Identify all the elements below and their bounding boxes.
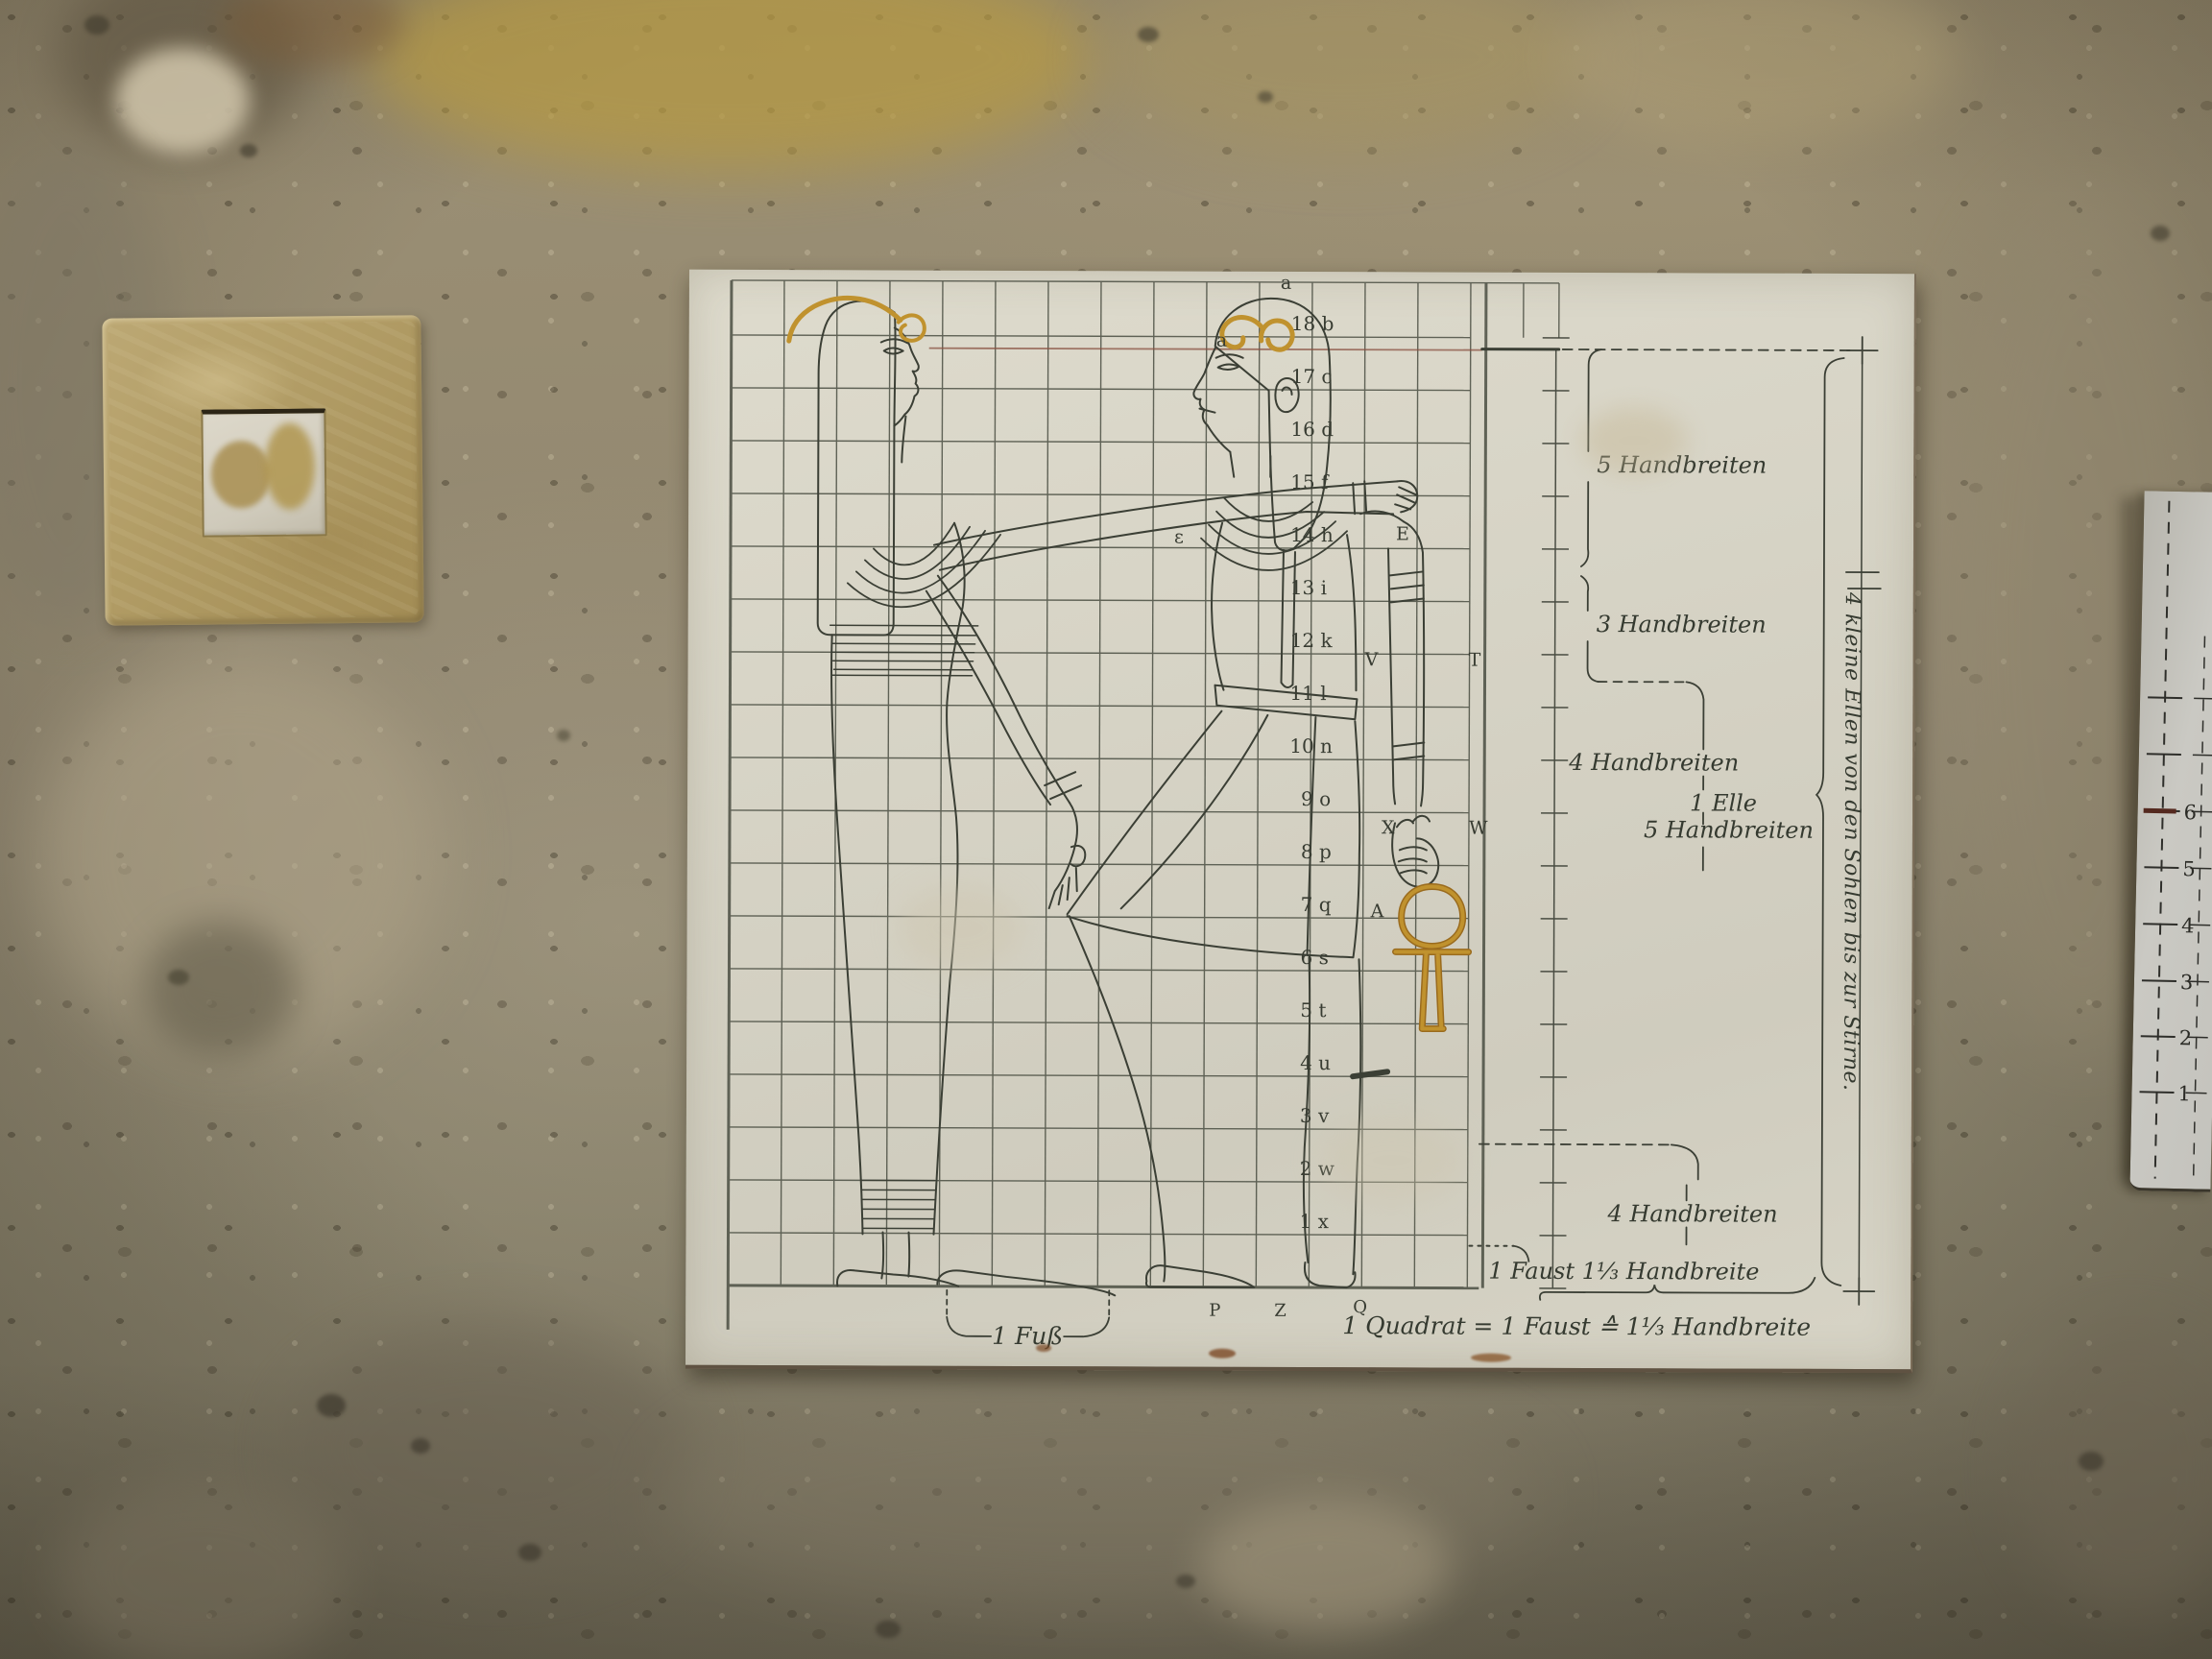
ruler-number: 1 (2177, 1082, 2191, 1105)
pharaoh-front-foot (1305, 1262, 1356, 1287)
ruler-tick (2143, 924, 2177, 925)
point-letter: Z (1274, 1301, 1286, 1321)
grid-vline (1361, 282, 1365, 1287)
measure-label: 3 Handbreiten (1597, 611, 1767, 638)
goddess-hand (1049, 803, 1086, 908)
ankh-icon (1395, 886, 1469, 1028)
pharaoh-hanging-arm (1387, 521, 1425, 805)
point-letter: T (1469, 650, 1481, 671)
scale-number: 11 l (1289, 682, 1326, 705)
pharaoh-eye (1216, 354, 1243, 370)
goddess-hand-on-shoulder (1395, 481, 1417, 512)
goddess-gold-coil-icon (899, 315, 925, 341)
grid-vline (728, 280, 732, 1330)
ruler-number: 6 (2183, 801, 2197, 824)
elle-ticks (1846, 572, 1881, 589)
scale-number: 10 n (1289, 734, 1333, 757)
pharaoh-face (1193, 349, 1231, 452)
ruler-tick (2140, 1092, 2175, 1093)
egyptian-proportion-canon-poster: 18 b17 c16 d15 f14 h13 i12 k11 l10 n9 o8… (685, 270, 1916, 1373)
goddess-neck (902, 417, 905, 463)
ruler-marks (2136, 500, 2212, 1179)
vertical-note: 4 kleine Ellen von den Sohlen bis zur St… (1839, 591, 1864, 1092)
point-letter: E (1396, 523, 1409, 544)
square-grid (728, 280, 1559, 1333)
ruler-number: 2 (2178, 1026, 2192, 1049)
grid-hline (728, 1286, 1479, 1288)
grid-right-edge (1482, 283, 1486, 1288)
red-guide-line (929, 349, 1482, 350)
scale-number: 16 d (1290, 418, 1334, 441)
fingertip-bold-dash (1353, 1071, 1387, 1076)
ruler-tick (2148, 697, 2182, 698)
formula-label: 1 Quadrat = 1 Faust ≙ 1⅓ Handbreite (1342, 1311, 1811, 1341)
scale-number: 2 w (1300, 1157, 1334, 1180)
ruler-canvas: 654321 (2129, 491, 2212, 1190)
goddess-back-foot (837, 1270, 958, 1286)
scale-number: 12 k (1290, 629, 1334, 652)
ankh-gold-fill (1395, 886, 1469, 1028)
point-letter: A (1370, 901, 1384, 922)
pharaoh-wig-queue (1281, 550, 1294, 687)
scale-number: 13 i (1290, 576, 1327, 599)
measure-label: 4 Handbreiten (1607, 1200, 1778, 1228)
pharaoh-belt (1214, 685, 1357, 720)
grid-vline (1256, 282, 1260, 1287)
scale-number: 14 h (1290, 523, 1334, 546)
measure-labels: 5 Handbreiten3 Handbreiten4 Handbreiten1… (1488, 451, 1815, 1286)
point-letter: P (1209, 1301, 1220, 1321)
grid-vline (1097, 281, 1101, 1286)
measure-label: 4 Handbreiten (1568, 749, 1739, 777)
point-letter: W (1469, 818, 1488, 839)
ruler-tick (2141, 1036, 2176, 1037)
measure-label: 1 Elle (1690, 789, 1757, 816)
point-letter: X (1382, 817, 1395, 838)
ruler-tick (2144, 867, 2178, 868)
paint-blot (264, 422, 315, 510)
point-letter: a (1216, 330, 1227, 351)
scale-number: 15 f (1290, 470, 1330, 493)
light-switch-rocker (201, 408, 326, 537)
grid-vline (1150, 281, 1154, 1286)
tick-column (1539, 338, 1569, 1288)
ruler-number: 3 (2180, 971, 2194, 994)
goddess-bracelet (1045, 772, 1081, 799)
grid-vline (1414, 282, 1418, 1287)
grid-top-line (732, 280, 1559, 283)
pharaoh-figure (1066, 298, 1440, 1287)
measure-label: 5 Handbreiten (1644, 816, 1814, 844)
cross-mark (1847, 337, 1878, 364)
photo-of-wall-with-proportion-diagram: 18 b17 c16 d15 f14 h13 i12 k11 l10 n9 o8… (0, 0, 2212, 1659)
cross-mark-bottom (1843, 1278, 1874, 1305)
goddess-hem-stripes (862, 1180, 935, 1228)
goddess-front-foot (937, 1270, 1115, 1295)
scale-number: 18 b (1291, 312, 1334, 335)
scale-number: 9 o (1301, 787, 1331, 810)
forehead-line-dashed (1563, 349, 1857, 350)
pharaoh-gold-uraeus-icon (1222, 317, 1292, 349)
scale-number: 4 u (1300, 1051, 1331, 1074)
point-letter: V (1364, 649, 1379, 670)
grid-vline (992, 281, 996, 1286)
dash-line-low (1479, 1144, 1671, 1145)
bracket-4-handbreiten-low (1671, 1144, 1697, 1244)
partial-ruler-panel: 654321 (2129, 491, 2212, 1192)
scale-number: 6 s (1300, 946, 1328, 969)
scale-number: 1 x (1300, 1210, 1330, 1233)
fuss-bracket-dashes (947, 1290, 1109, 1318)
point-letter: ε (1174, 527, 1184, 548)
scale-number: 7 q (1301, 893, 1332, 916)
grid-vline (781, 280, 784, 1286)
scale-number: 8 p (1301, 840, 1332, 863)
ruler-number: 5 (2182, 857, 2196, 880)
grid-vline (1203, 282, 1207, 1287)
foot-label: 1 Fuß (992, 1322, 1063, 1350)
measure-label: 5 Handbreiten (1597, 451, 1767, 479)
scale-number: 3 v (1300, 1104, 1330, 1127)
pharaoh-neck (1230, 452, 1270, 477)
ruler-tick (2147, 754, 2181, 755)
diagram-canvas: 18 b17 c16 d15 f14 h13 i12 k11 l10 n9 o8… (685, 270, 1914, 1369)
ruler-dashed-line (2155, 501, 2170, 1179)
ruler-dashed-line (2194, 637, 2205, 1180)
measure-label: 1 Faust 1⅓ Handbreite (1488, 1258, 1759, 1286)
pharaoh-wristband (1393, 742, 1424, 759)
ruler-tick (2142, 980, 2176, 981)
grid-top-extra (1524, 283, 1559, 338)
light-switch (102, 315, 423, 625)
paint-blot (211, 441, 272, 509)
grid-vline (1467, 283, 1471, 1288)
scale-number: 5 t (1300, 998, 1326, 1022)
ruler-number: 4 (2181, 914, 2195, 937)
pharaoh-armband (1390, 571, 1424, 602)
goddess-corselet-band (830, 625, 978, 676)
ruler-red-dash (2144, 810, 2176, 811)
scale-number: 17 c (1291, 365, 1333, 388)
ruler-numbers: 654321 (2177, 801, 2197, 1105)
tick-line (1552, 349, 1555, 1288)
pharaoh-back-foot (1146, 1265, 1254, 1287)
point-letter: a (1281, 273, 1291, 294)
grid-vline (886, 281, 890, 1286)
